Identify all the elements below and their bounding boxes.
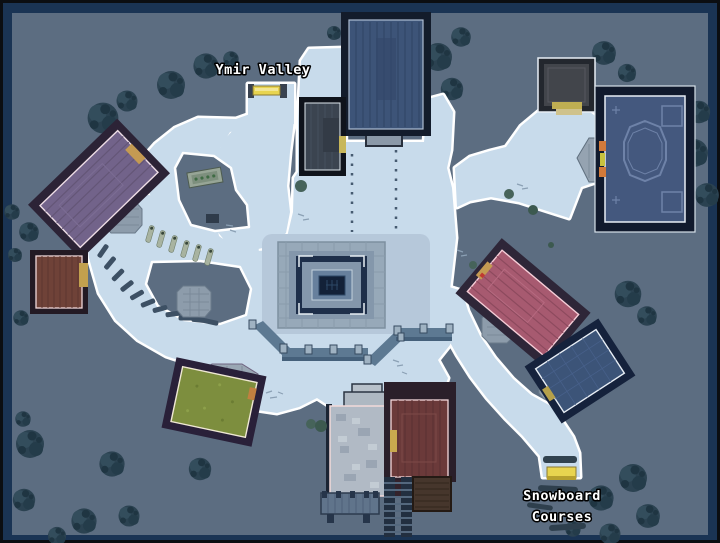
cabin-door (79, 263, 88, 287)
annex-door (339, 136, 346, 153)
east-grand-hall (595, 86, 695, 232)
hall-door (390, 430, 397, 452)
course-label-line1: Snowboard (523, 488, 601, 504)
north-annex (299, 97, 346, 176)
central-plaza (262, 234, 430, 334)
map-viewport[interactable]: Ymir Valley Snowboard Courses (0, 0, 720, 543)
cabin-door (552, 102, 582, 109)
torch-icon (599, 141, 606, 151)
bench-prop (206, 214, 219, 223)
region-label: Ymir Valley (216, 62, 311, 78)
west-cabin (30, 250, 88, 314)
map-canvas[interactable]: Ymir Valley Snowboard Courses (0, 0, 720, 543)
torch-icon (599, 167, 606, 177)
north-lodge (341, 12, 431, 136)
northeast-cabin (538, 58, 595, 115)
course-label-line2: Courses (532, 509, 592, 525)
snowboard-gate (543, 456, 577, 480)
